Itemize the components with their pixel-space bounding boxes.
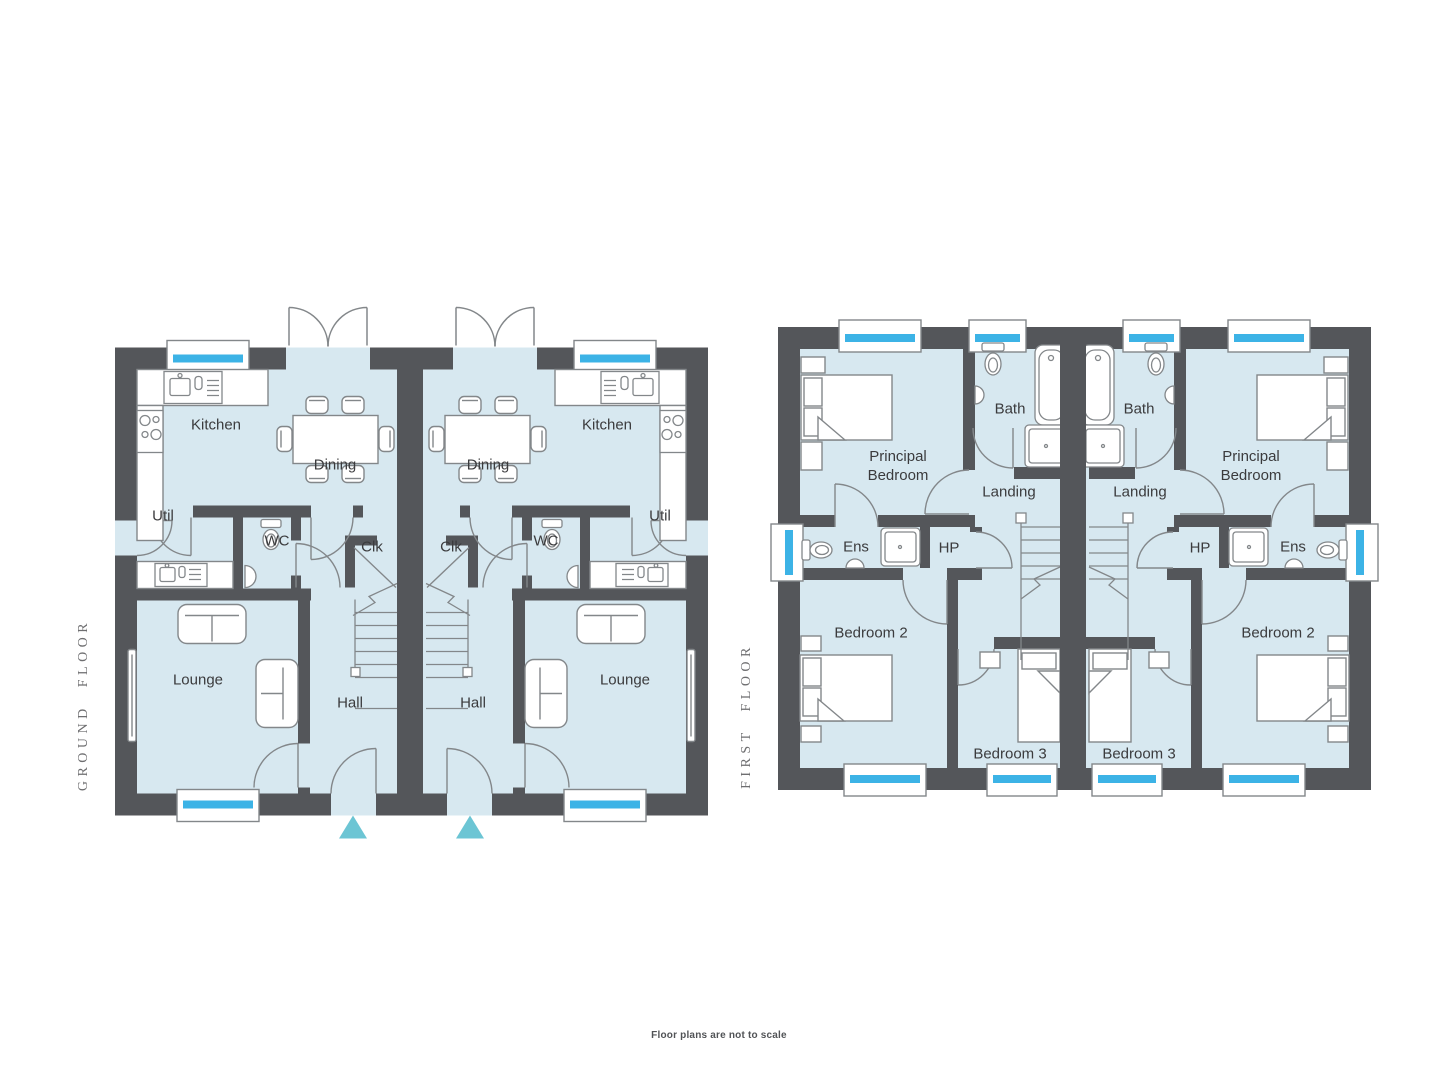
room-label-kitchen: Kitchen	[191, 416, 241, 435]
room-label-kitchen: Kitchen	[582, 416, 632, 435]
room-label-ens: Ens	[1280, 538, 1306, 557]
room-label-bath: Bath	[1124, 400, 1155, 419]
room-label-hp: HP	[1190, 539, 1211, 558]
room-label-dining: Dining	[467, 456, 510, 475]
first-floor-left-house	[771, 320, 1075, 796]
floor-title-ground: GROUND FLOOR	[76, 615, 92, 795]
room-label-hp: HP	[939, 539, 960, 558]
room-label-lounge: Lounge	[173, 671, 223, 690]
first-floor-right-house	[1074, 320, 1378, 796]
room-label-bedroom-2: Bedroom 2	[834, 624, 907, 643]
room-label-lounge: Lounge	[600, 671, 650, 690]
ground-floor-svg	[115, 280, 708, 838]
room-label-ens: Ens	[843, 538, 869, 557]
room-label-util: Util	[152, 507, 174, 526]
room-label-bath: Bath	[995, 400, 1026, 419]
floorplan-page: Kitchen Dining Util WC Clk Lounge Hall K…	[0, 0, 1440, 1080]
room-label-hall: Hall	[460, 694, 486, 713]
floor-title-first: FIRST FLOOR	[739, 641, 755, 791]
room-label-wc: WC	[265, 532, 290, 551]
ground-floor-plan: Kitchen Dining Util WC Clk Lounge Hall K…	[115, 325, 708, 793]
room-label-hall: Hall	[337, 694, 363, 713]
room-label-util: Util	[649, 507, 671, 526]
ground-floor-right-house	[411, 308, 708, 839]
party-wall	[1060, 327, 1086, 790]
room-label-principal-bedroom: Principal Bedroom	[1203, 447, 1299, 485]
room-label-wc: WC	[534, 532, 559, 551]
room-label-bedroom-3: Bedroom 3	[1102, 745, 1175, 764]
room-label-bedroom-3: Bedroom 3	[973, 745, 1046, 764]
first-floor-svg	[778, 317, 1371, 800]
footnote: Floor plans are not to scale	[519, 1030, 919, 1041]
room-label-clk: Clk	[361, 538, 383, 557]
room-label-landing: Landing	[982, 483, 1035, 502]
room-label-landing: Landing	[1113, 483, 1166, 502]
party-wall	[397, 348, 423, 816]
room-label-clk: Clk	[440, 538, 462, 557]
room-label-bedroom-2: Bedroom 2	[1241, 624, 1314, 643]
ground-floor-left-house	[115, 308, 412, 839]
room-label-dining: Dining	[314, 456, 357, 475]
first-floor-plan: Principal Bedroom Bath Landing Ens HP Be…	[778, 327, 1371, 790]
room-label-principal-bedroom: Principal Bedroom	[850, 447, 946, 485]
